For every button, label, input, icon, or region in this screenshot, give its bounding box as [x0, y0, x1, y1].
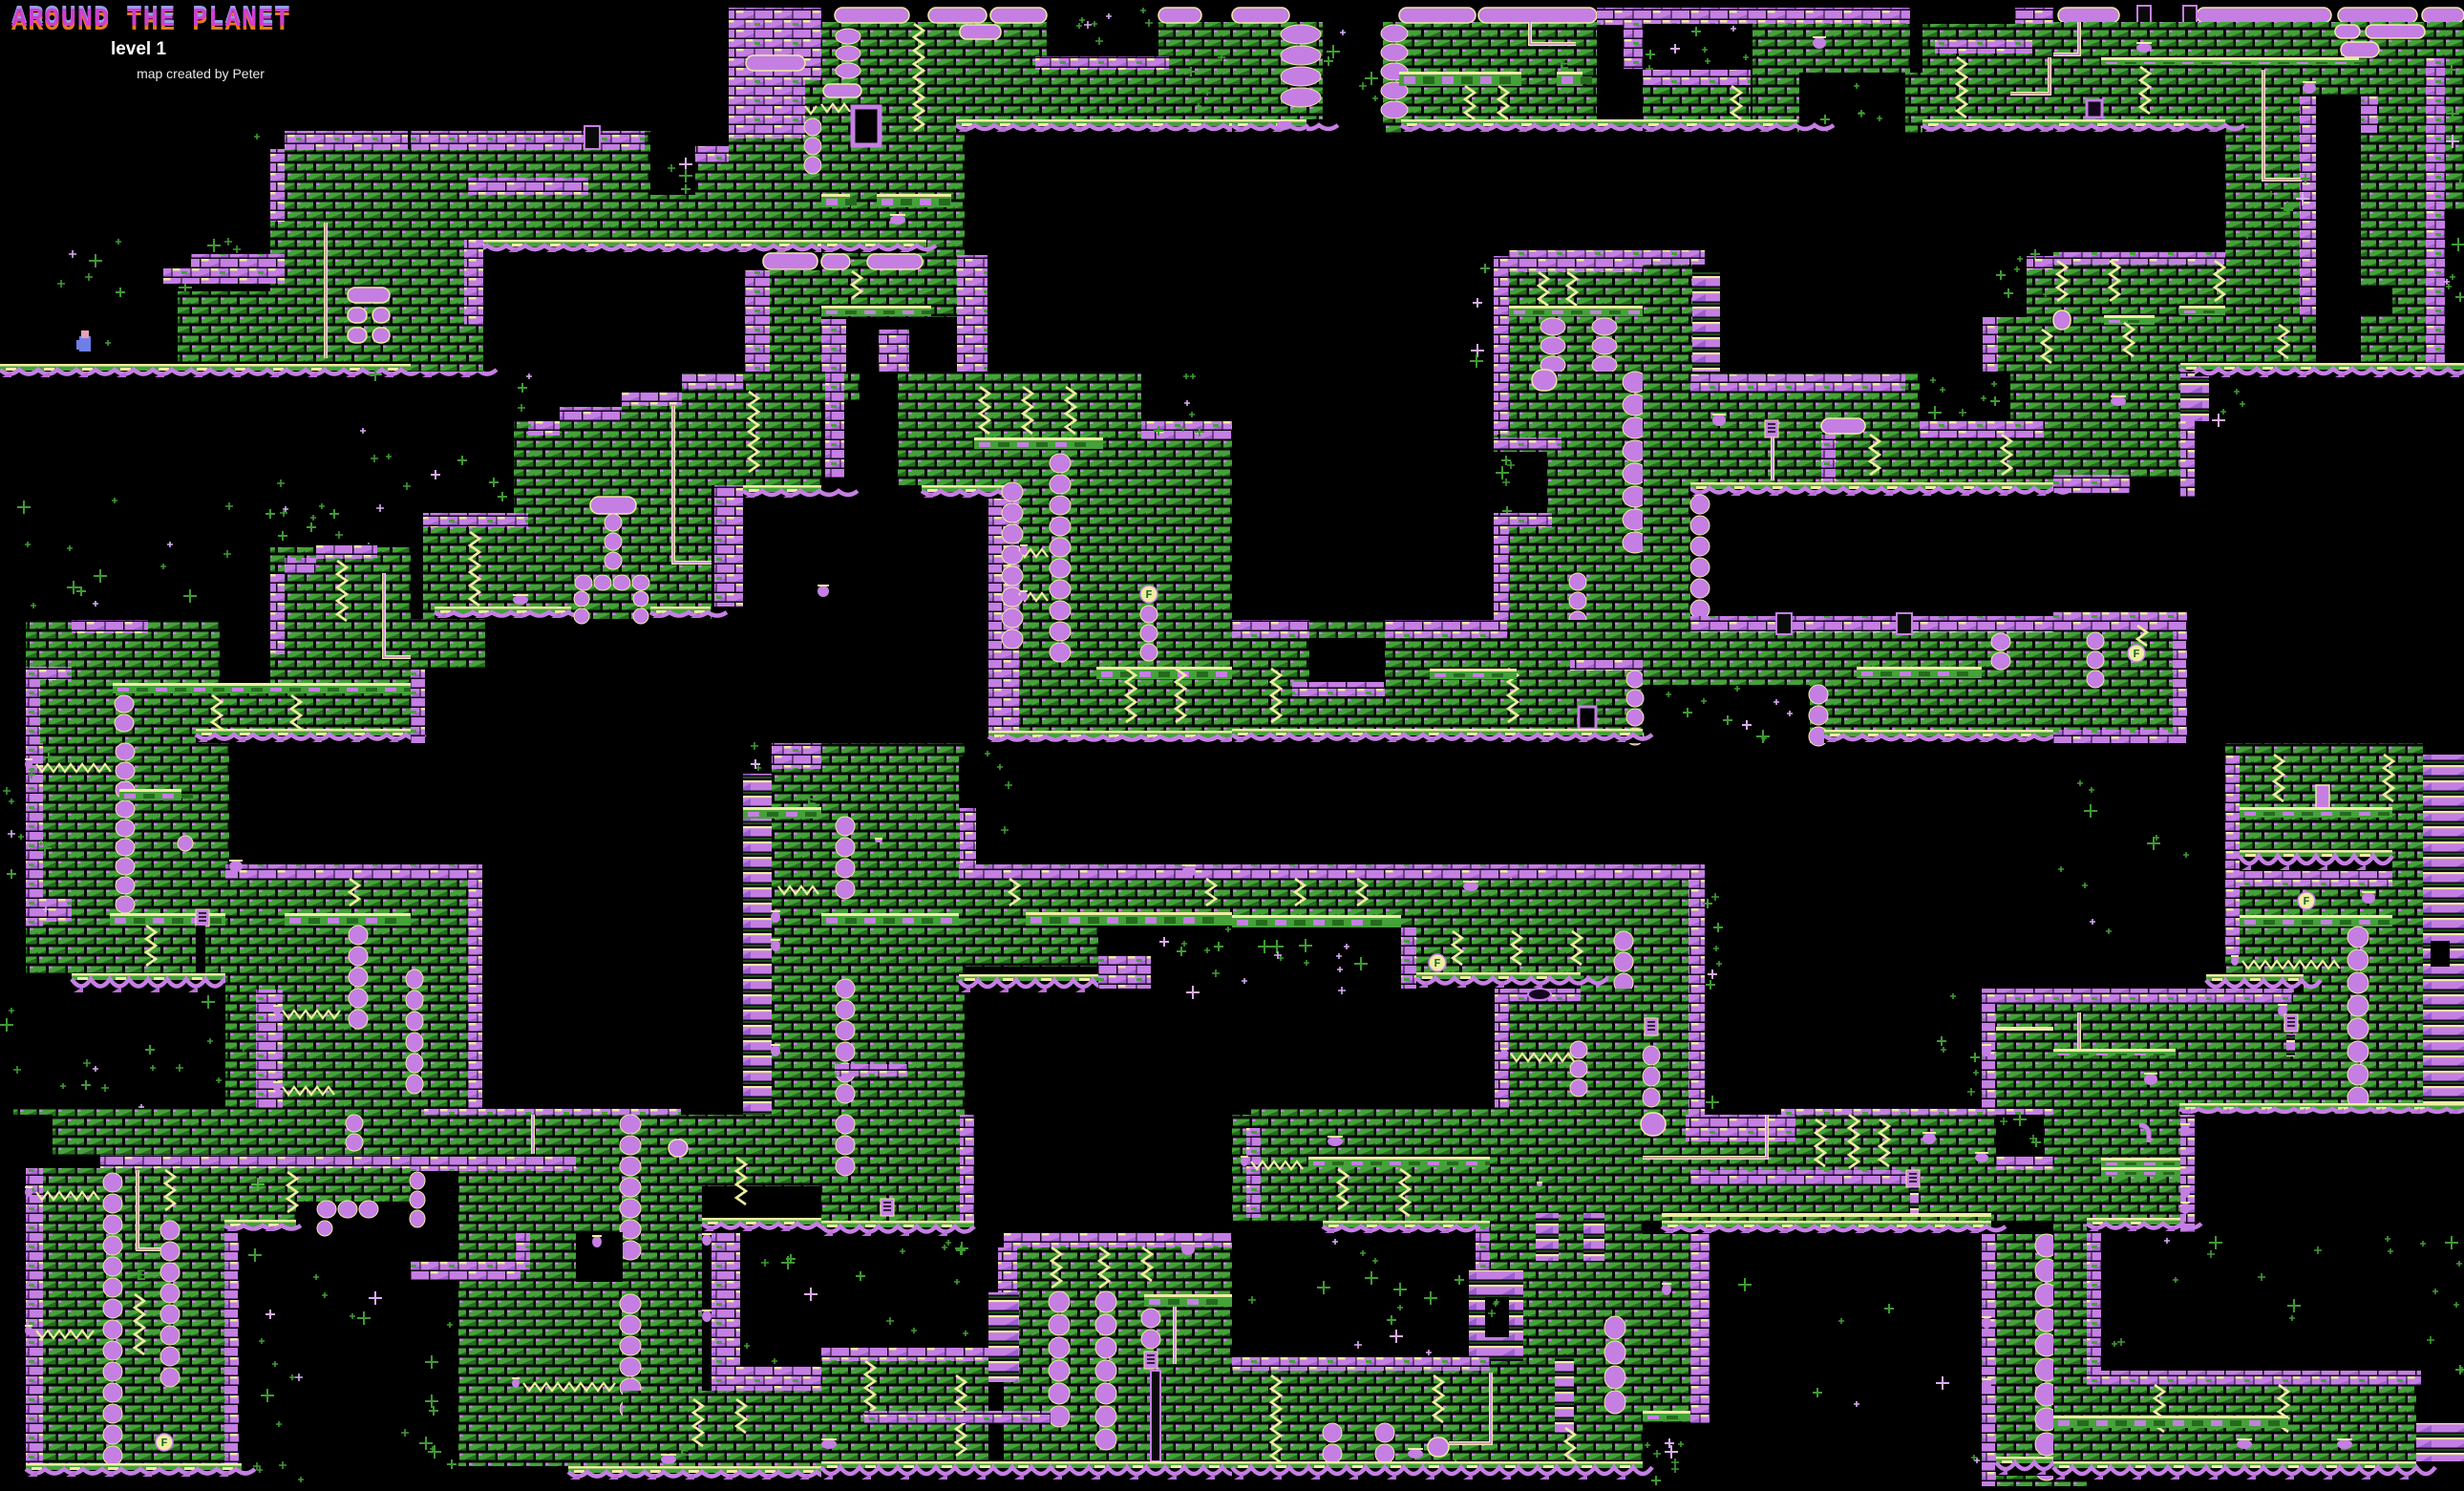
- svg-text:F: F: [1145, 588, 1152, 602]
- svg-text:map created by Peter: map created by Peter: [137, 66, 265, 81]
- svg-text:E: E: [680, 1443, 690, 1460]
- svg-text:F: F: [2133, 648, 2139, 661]
- svg-text:F: F: [160, 1437, 167, 1450]
- svg-text:F: F: [1434, 957, 1440, 970]
- svg-text:AROUND THE PLANET: AROUND THE PLANET: [11, 6, 290, 34]
- svg-text:E: E: [137, 1267, 146, 1285]
- svg-text:F: F: [2303, 895, 2309, 908]
- svg-text:E: E: [807, 792, 817, 809]
- svg-text:level 1: level 1: [111, 39, 167, 59]
- svg-text:E: E: [1560, 56, 1569, 74]
